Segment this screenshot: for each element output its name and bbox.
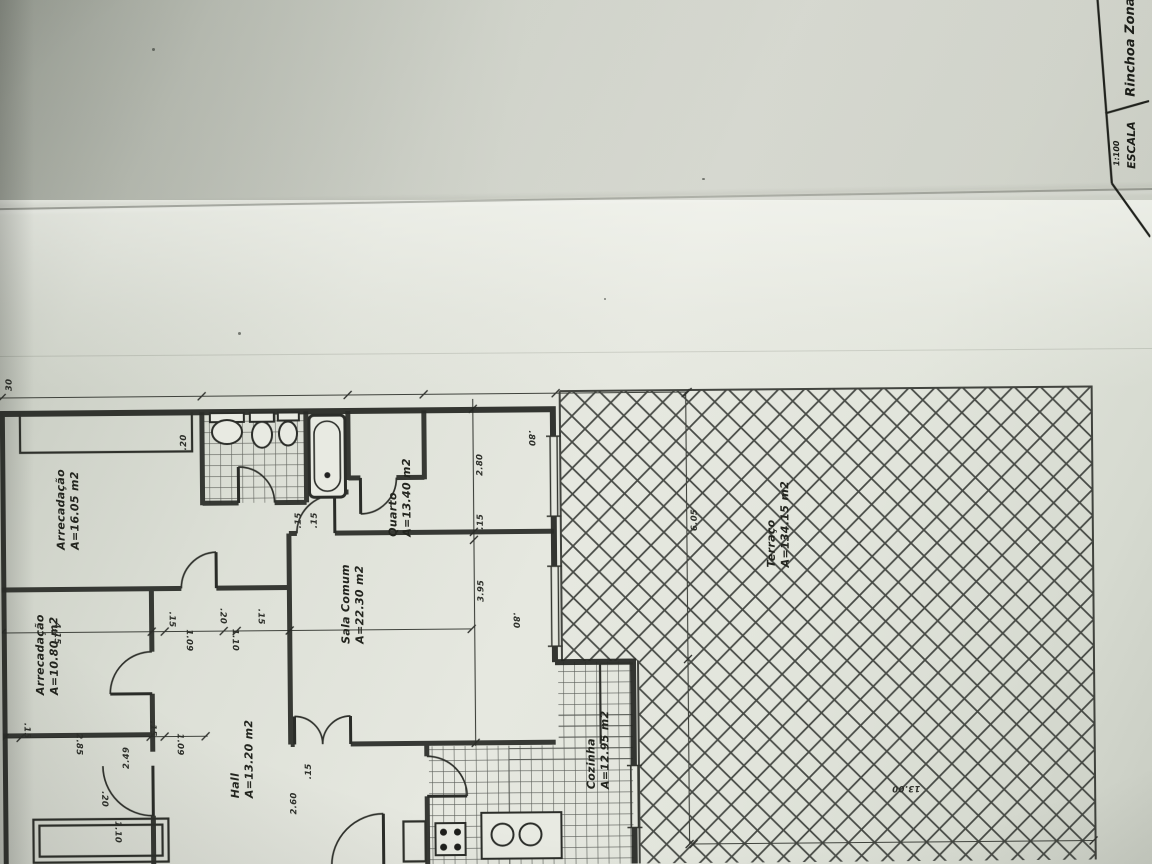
dim-label: .20	[179, 434, 189, 450]
dust-speck	[238, 332, 241, 335]
washbasin-icon	[212, 420, 242, 444]
dim-label: 30	[5, 379, 15, 392]
room-area: A=12.95 m2	[598, 710, 612, 789]
dim-label: 6.05	[690, 509, 700, 531]
dim-label: 2.49	[122, 747, 132, 769]
titleblock-scale-label: ESCALA	[1125, 121, 1138, 169]
dim-label: 1.09	[184, 629, 194, 651]
room-name: Arrecadação	[54, 469, 68, 550]
room-area: A=13.20 m2	[242, 720, 256, 799]
terrace-hatch	[560, 386, 1096, 864]
dim-label: 1.10	[230, 629, 240, 651]
floorplan-photo: Rinchoa Zona ESCALA 1:100 Arrecadação A=…	[0, 0, 1152, 864]
room-area: A=22.30 m2	[353, 565, 367, 644]
floorplan-drawing-area: Rinchoa Zona ESCALA 1:100 Arrecadação A=…	[0, 0, 1152, 864]
room-area: A=16.05 m2	[68, 471, 82, 550]
dim-label: .15	[304, 763, 314, 779]
dim-label: 1.10	[112, 821, 122, 843]
dim-label: 2.80	[475, 454, 485, 476]
dust-speck	[702, 178, 705, 180]
bidet-icon	[279, 421, 297, 445]
room-name: Arrecadação	[33, 614, 47, 695]
dim-label: 1.09	[175, 733, 185, 755]
dim-label: .15	[476, 514, 486, 530]
dim-label: .15	[22, 723, 32, 739]
dim-label: .15	[256, 609, 266, 625]
room-label-cozinha: Cozinha A=12.95 m2	[584, 710, 613, 789]
floorplan-linework	[0, 0, 1152, 864]
titleblock-project-name: Rinchoa Zona	[1123, 0, 1139, 97]
dim-label: .80	[526, 430, 536, 446]
room-name: Sala Comum	[339, 564, 353, 644]
bathtub-drain	[324, 472, 330, 478]
bidet-icon	[278, 412, 299, 420]
dim-label: 2.60	[289, 792, 299, 814]
dim-label: .15	[167, 612, 177, 628]
dim-label: .20	[218, 608, 228, 624]
dim-label: .15	[310, 512, 320, 528]
titleblock-scale-value: 1:100	[1112, 140, 1121, 166]
stove-burner	[454, 829, 461, 836]
dim-label: .15	[148, 721, 158, 737]
stove-burner	[440, 844, 447, 851]
room-area: A=13.40 m2	[400, 458, 414, 537]
stove-burner	[454, 844, 461, 851]
toilet-icon	[250, 413, 274, 422]
room-label-hall: Hall A=13.20 m2	[228, 720, 257, 799]
room-label-arrecadacao-1: Arrecadação A=16.05 m2	[54, 469, 83, 550]
room-label-terraco: Terraço A=134.15 m2	[764, 481, 793, 568]
dim-label: .15	[294, 512, 304, 528]
dim-label: .80	[511, 613, 521, 629]
dim-label: 4.15	[52, 622, 62, 644]
room-label-quarto: Quarto A=13.40 m2	[386, 458, 415, 537]
toilet-icon	[252, 422, 272, 448]
stove-icon	[435, 823, 465, 855]
dust-speck	[152, 48, 155, 51]
room-area: A=134.15 m2	[778, 481, 792, 568]
dim-label: 3.95	[476, 580, 486, 602]
dim-label: 2.85	[74, 733, 84, 755]
room-label-sala-comum: Sala Comum A=22.30 m2	[339, 564, 368, 644]
dust-speck	[604, 298, 606, 300]
room-name: Terraço	[764, 519, 777, 567]
dim-label: .20	[99, 791, 109, 807]
stove-burner	[440, 829, 447, 836]
dim-label: 13.00	[892, 783, 920, 793]
room-name: Quarto	[386, 492, 399, 537]
sink-counter	[481, 812, 561, 859]
room-name: Hall	[229, 773, 242, 798]
room-name: Cozinha	[584, 738, 597, 789]
